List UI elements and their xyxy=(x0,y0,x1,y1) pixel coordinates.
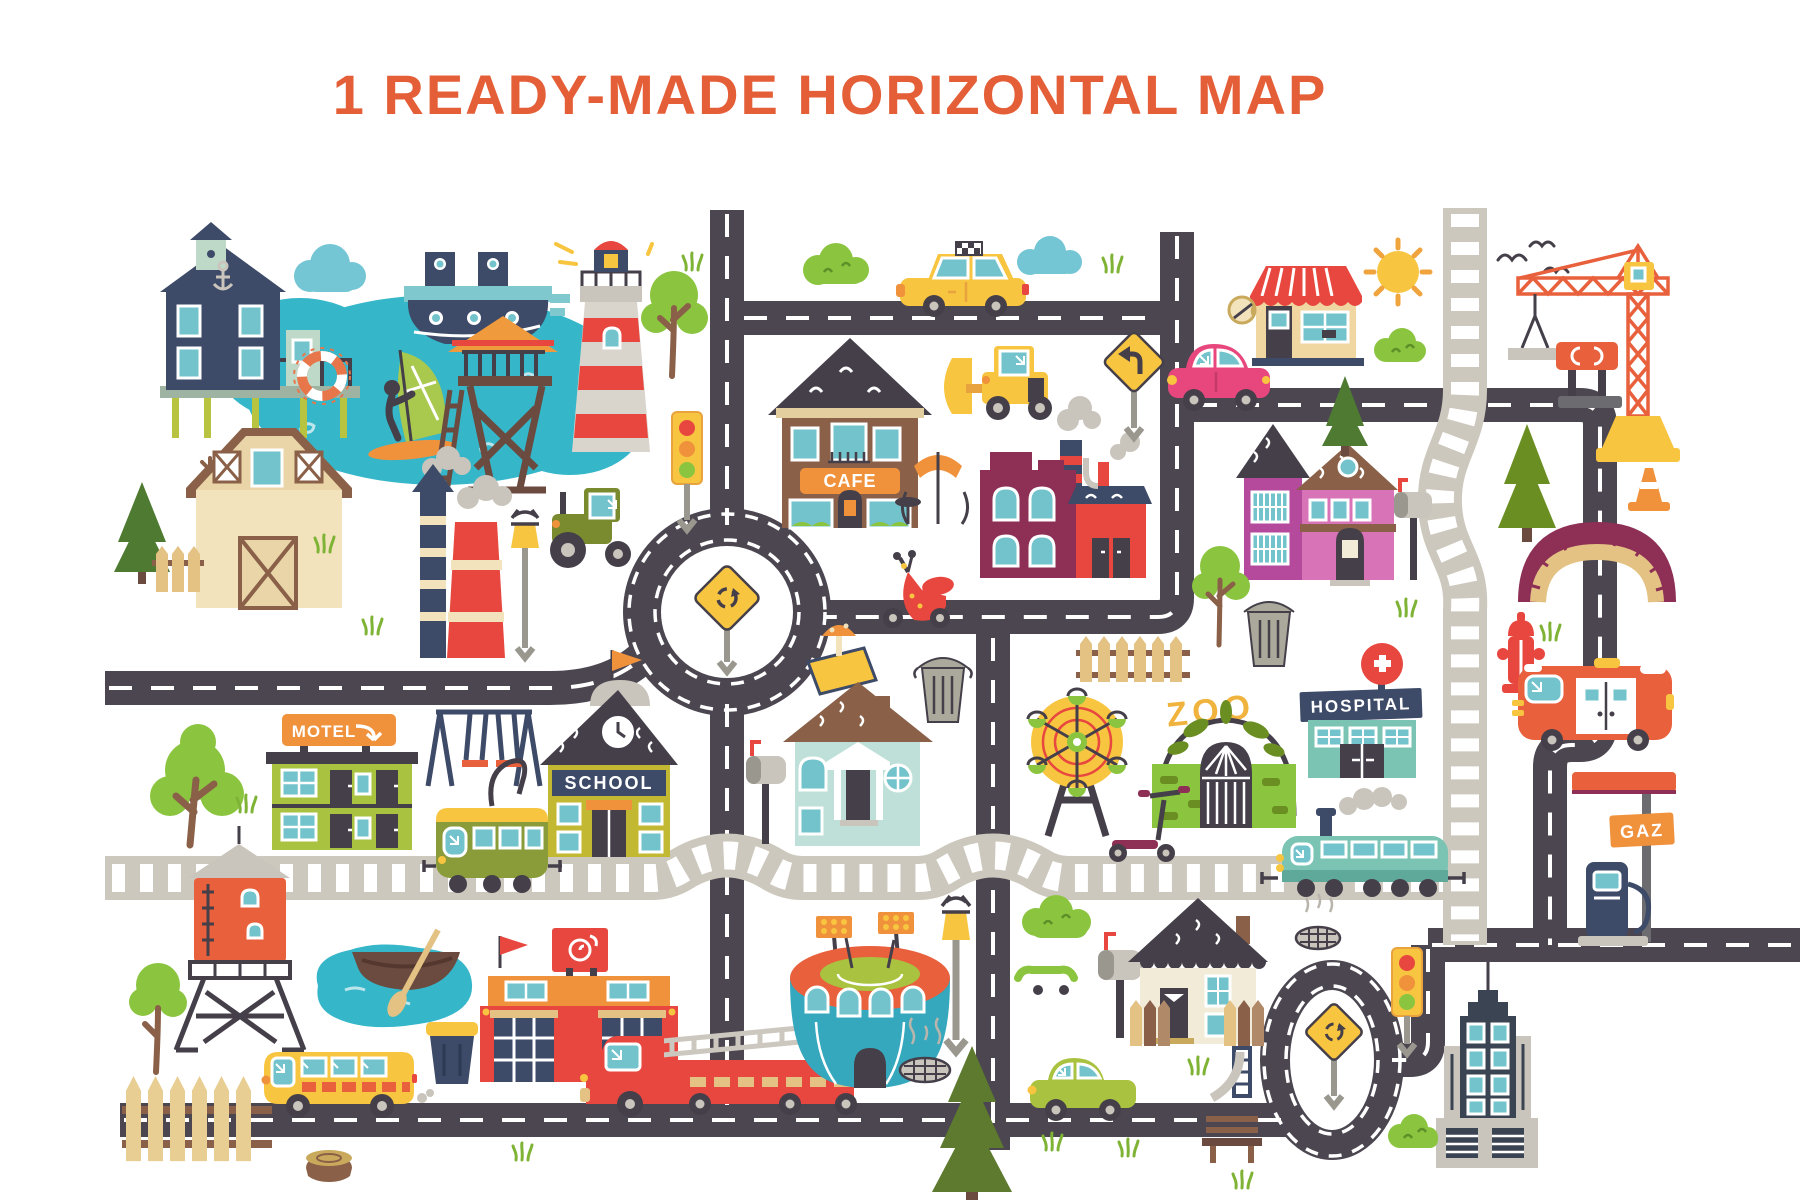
motel: MOTEL xyxy=(266,714,418,850)
clock-icon xyxy=(601,715,635,749)
zoo-sign-label: ZOO xyxy=(1165,688,1257,735)
ferris-wheel xyxy=(1028,689,1126,836)
street-lamp-1 xyxy=(511,510,539,658)
pine-tree-1 xyxy=(1498,424,1556,542)
hospital: HOSPITAL xyxy=(1300,643,1423,778)
bush-1 xyxy=(803,243,869,285)
skyscraper xyxy=(1436,962,1538,1168)
map-illustration: CAFE xyxy=(0,0,1800,1201)
zoo: ZOO xyxy=(1152,688,1296,828)
billboard xyxy=(1556,342,1622,408)
bush-2 xyxy=(1374,328,1426,362)
skateboard xyxy=(1018,970,1074,995)
tree-4 xyxy=(129,963,187,1072)
recycle-bin xyxy=(426,1022,478,1084)
manhole-2 xyxy=(1296,894,1340,949)
picket-fence-1 xyxy=(1076,636,1190,682)
siren-icon xyxy=(1594,658,1620,668)
cloud-1 xyxy=(294,244,366,292)
sun xyxy=(1366,240,1430,304)
tree-2 xyxy=(1192,546,1250,645)
bush-4 xyxy=(1388,1114,1438,1148)
gas-station: GAZ xyxy=(1572,772,1676,946)
mailbox-2 xyxy=(746,742,786,844)
station-flag-icon xyxy=(500,936,528,955)
motel-sign-label: MOTEL xyxy=(292,722,357,741)
bulldozer xyxy=(944,346,1052,420)
purple-house xyxy=(1236,424,1398,586)
roundabout-sign-1 xyxy=(693,564,761,672)
mailbox-flag-icon xyxy=(1106,934,1116,950)
trash-can-1 xyxy=(914,658,971,722)
trash-can-2 xyxy=(1244,602,1294,666)
mailbox-flag-icon xyxy=(1400,480,1408,492)
factory xyxy=(980,396,1152,578)
traffic-cone xyxy=(1628,468,1670,511)
gas-sign-label: GAZ xyxy=(1620,820,1665,842)
blue-house xyxy=(783,682,933,846)
railroad-vertical xyxy=(1440,208,1465,945)
mailbox-flag-icon xyxy=(752,742,761,756)
roundabout-sign-2 xyxy=(1304,1002,1363,1106)
map-canvas: 1 READY-MADE HORIZONTAL MAP xyxy=(0,0,1800,1201)
vespa-scooter xyxy=(883,550,955,628)
slide xyxy=(1212,1048,1250,1098)
cream-house xyxy=(1128,898,1268,1046)
ambulance xyxy=(1512,658,1674,751)
coffee-shop xyxy=(1229,266,1364,366)
cloud-2 xyxy=(1017,236,1082,275)
barn xyxy=(152,428,352,608)
hospital-sign-label: HOSPITAL xyxy=(1310,694,1411,717)
house-fence-left xyxy=(1130,1000,1170,1046)
bush-3 xyxy=(1022,895,1091,938)
barn-fence xyxy=(152,546,204,592)
gas-pump-icon xyxy=(1578,862,1649,946)
tree-stump xyxy=(306,1150,352,1182)
left-turn-sign xyxy=(1103,331,1165,438)
house-fence-right xyxy=(1224,1000,1264,1046)
tree-3 xyxy=(150,724,244,845)
tree-1 xyxy=(641,271,708,376)
tractor xyxy=(550,488,631,568)
coffee-cup-sign-icon xyxy=(1229,297,1255,323)
school-sign-label: SCHOOL xyxy=(564,773,653,793)
cafe-sign-label: CAFE xyxy=(824,471,877,491)
taxi xyxy=(896,242,1029,317)
